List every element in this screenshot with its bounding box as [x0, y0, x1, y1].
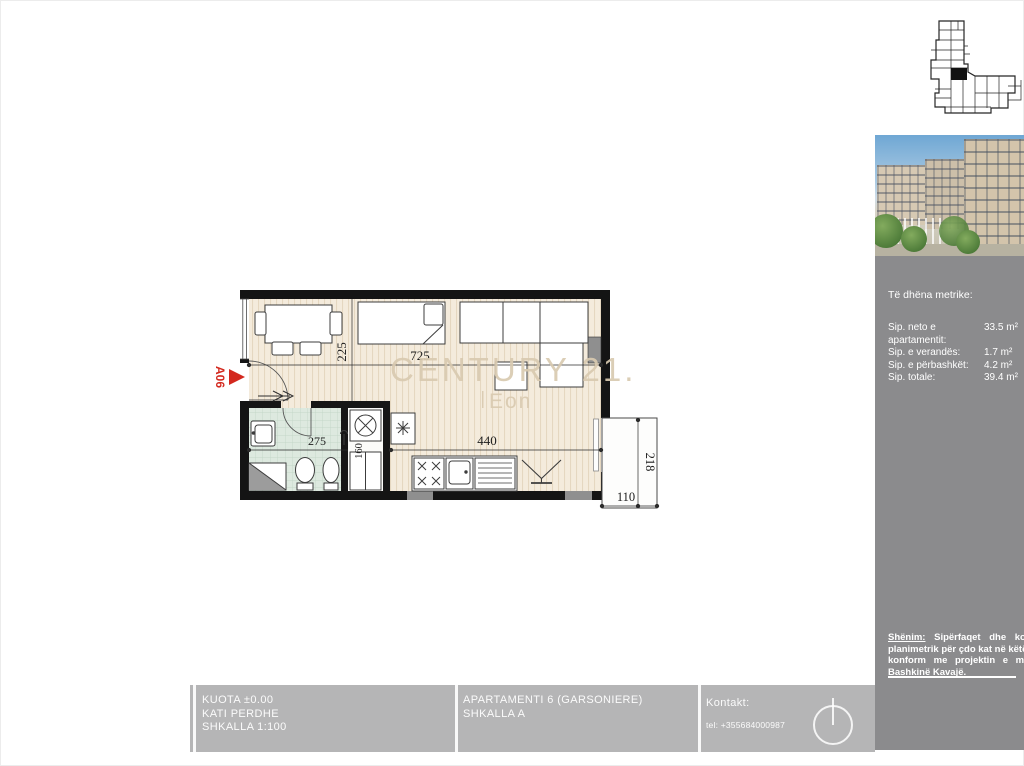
watermark-sub: Eon [489, 390, 532, 413]
metric-row: Sip. e përbashkët: 4.2 m² [888, 360, 1022, 373]
metric-row: Sip. neto e apartamentit: 33.5 m² [888, 322, 1022, 347]
toilet [296, 458, 315, 483]
metric-label: Sip. totale: [888, 372, 984, 385]
metric-value: 4.2 m² [984, 360, 1022, 373]
legal-note: Shënim: Sipërfaqet dhe konfigu planimetr… [888, 632, 1024, 678]
photo-tree [956, 230, 980, 254]
metric-label: Sip. neto e apartamentit: [888, 322, 984, 347]
dim-closet-depth: 160 [354, 443, 365, 459]
kuota-text: KUOTA ±0.00 [202, 694, 287, 708]
note-label: Shënim: [888, 632, 925, 643]
metrics-table: Sip. neto e apartamentit: 33.5 m² Sip. e… [888, 322, 1022, 385]
divider [193, 685, 196, 752]
legal-note-line: konform me projektin e miratuar [888, 655, 1024, 667]
plan-sheet: Të dhëna metrike: Sip. neto e apartament… [0, 0, 1024, 766]
key-plan-outline [931, 21, 1015, 113]
chair [300, 342, 321, 355]
contact-label: Kontakt: [706, 697, 750, 709]
legal-note-line: planimetrik për çdo kat në këtë album ë [888, 644, 1024, 656]
divider-line [888, 676, 1016, 678]
unit-label: A06 [213, 366, 227, 388]
chair [255, 312, 266, 335]
metric-value: 39.4 m² [984, 372, 1022, 385]
dim-veranda-width: 110 [617, 490, 635, 504]
watermark-brand: CENTURY 21. [390, 351, 636, 388]
metrics-title: Të dhëna metrike: [888, 289, 973, 301]
note-text: Sipërfaqet dhe konfigu [934, 632, 1024, 643]
legal-note-line: Shënim: Sipërfaqet dhe konfigu [888, 632, 1024, 644]
dim-kitchen-width: 440 [477, 433, 497, 448]
building-key-plan [918, 16, 1024, 128]
metric-row: Sip. e verandës: 1.7 m² [888, 347, 1022, 360]
north-arrow-icon [832, 698, 834, 725]
apartment-info: APARTAMENTI 6 (GARSONIERE) SHKALLA A [463, 694, 643, 721]
metric-value: 1.7 m² [984, 347, 1022, 360]
info-panel: Të dhëna metrike: Sip. neto e apartament… [875, 256, 1024, 750]
photo-tree [901, 226, 927, 252]
dining-table [265, 305, 332, 343]
chair [272, 342, 293, 355]
bidet [323, 458, 339, 483]
metric-row: Sip. totale: 39.4 m² [888, 372, 1022, 385]
kati-text: KATI PERDHE [202, 708, 287, 722]
contact-phone: tel: +355684000987 [706, 720, 785, 730]
floor-plan-drawing: 725 225 440 275 160 218 110 A06 CENTURY … [180, 278, 680, 533]
shkalla-scale-text: SHKALLA 1:100 [202, 721, 287, 735]
sofa [460, 302, 588, 343]
chair [330, 312, 342, 335]
level-info: KUOTA ±0.00 KATI PERDHE SHKALLA 1:100 [202, 694, 287, 735]
metric-label: Sip. e verandës: [888, 347, 984, 360]
metric-label: Sip. e përbashkët: [888, 360, 984, 373]
pillow [424, 304, 443, 325]
stair-text: SHKALLA A [463, 708, 643, 722]
title-block: KUOTA ±0.00 KATI PERDHE SHKALLA 1:100 AP… [190, 685, 875, 752]
dim-room-height: 225 [334, 342, 349, 362]
building-photo [875, 135, 1024, 256]
photo-ground [875, 244, 1024, 256]
dim-veranda-height: 218 [643, 453, 657, 472]
divider [698, 685, 701, 752]
dim-bath-width: 275 [308, 434, 326, 448]
key-plan-current-unit [951, 68, 967, 80]
metric-value: 33.5 m² [984, 322, 1022, 347]
boiler-icon [396, 421, 410, 435]
apartment-title: APARTAMENTI 6 (GARSONIERE) [463, 694, 643, 708]
divider [455, 685, 458, 752]
